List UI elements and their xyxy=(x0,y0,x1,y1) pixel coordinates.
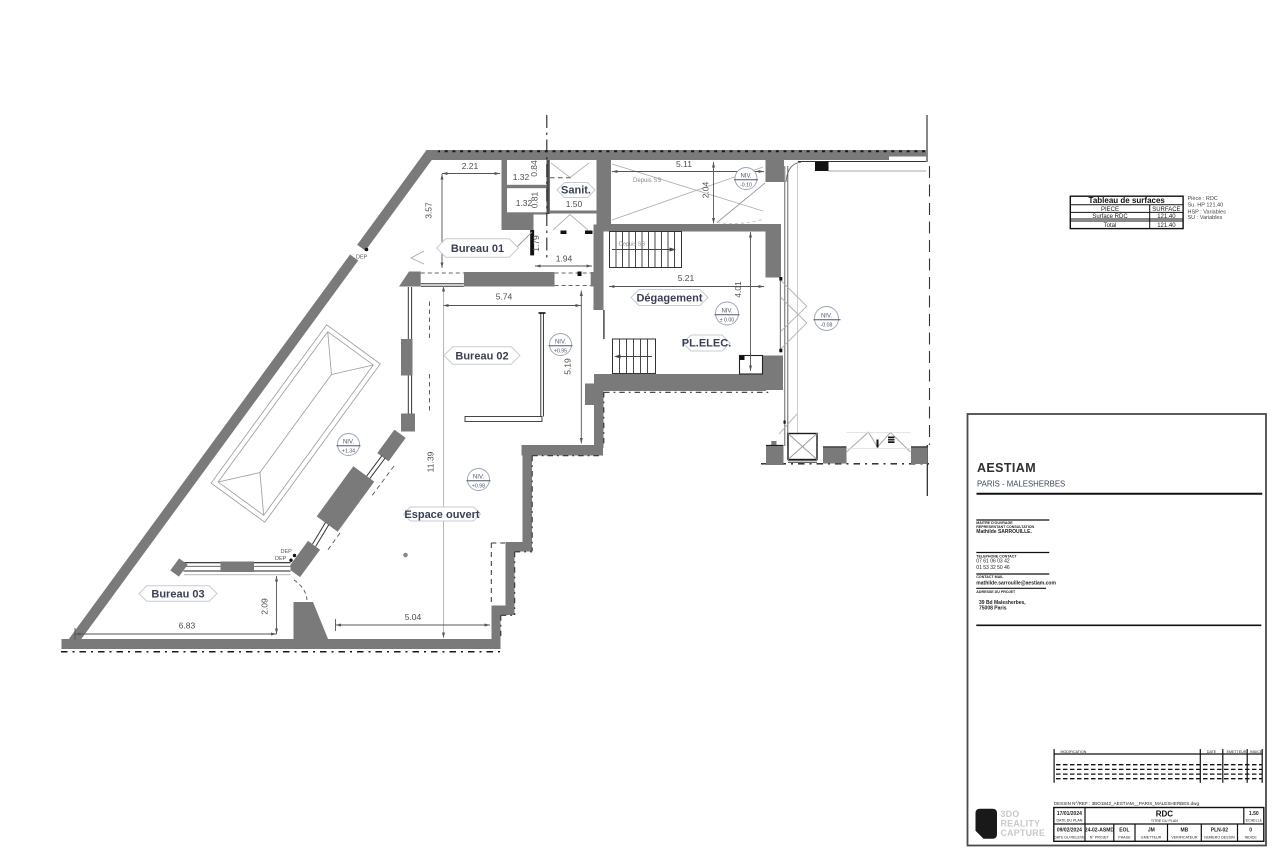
svg-text:Su. HP 121.40: Su. HP 121.40 xyxy=(1188,203,1224,209)
svg-text:3DO: 3DO xyxy=(1001,809,1020,819)
svg-text:Depuis SS: Depuis SS xyxy=(633,178,661,184)
svg-text:07 61 06 03 42: 07 61 06 03 42 xyxy=(976,559,1010,565)
svg-text:+0.95: +0.95 xyxy=(554,349,567,355)
svg-text:Bureau 01: Bureau 01 xyxy=(451,243,504,255)
svg-text:EOL: EOL xyxy=(1119,828,1129,834)
svg-text:AESTIAM: AESTIAM xyxy=(977,461,1036,475)
svg-text:+0.98: +0.98 xyxy=(472,484,485,490)
svg-text:1.50: 1.50 xyxy=(1249,811,1259,817)
svg-text:Surface RDC: Surface RDC xyxy=(1092,214,1128,220)
svg-text:5.74: 5.74 xyxy=(496,292,513,302)
svg-text:121.40: 121.40 xyxy=(1157,223,1176,229)
svg-text:0: 0 xyxy=(1249,828,1252,834)
svg-text:VERIFICATEUR: VERIFICATEUR xyxy=(1171,836,1197,840)
svg-text:Dégagement: Dégagement xyxy=(636,293,702,305)
svg-text:INDICE: INDICE xyxy=(1250,750,1263,754)
svg-text:NIV.: NIV. xyxy=(343,440,354,446)
svg-text:5.19: 5.19 xyxy=(563,358,573,375)
svg-text:2.21: 2.21 xyxy=(462,161,479,171)
svg-text:Sanit.: Sanit. xyxy=(561,185,591,197)
svg-text:DEP: DEP xyxy=(281,549,293,555)
svg-text:5.11: 5.11 xyxy=(676,159,692,169)
svg-text:INDICE: INDICE xyxy=(1245,836,1258,840)
svg-text:RDC: RDC xyxy=(1156,810,1174,819)
svg-text:121.40: 121.40 xyxy=(1157,214,1176,220)
svg-text:Mathilde SARROUILLE.: Mathilde SARROUILLE. xyxy=(976,529,1032,535)
svg-text:Bureau 03: Bureau 03 xyxy=(151,589,204,601)
svg-text:± 0.00: ± 0.00 xyxy=(720,318,734,324)
svg-text:1.94: 1.94 xyxy=(556,254,573,264)
svg-text:DATE DU RELEVE: DATE DU RELEVE xyxy=(1054,836,1085,840)
svg-text:ADRESSE DU PROJET: ADRESSE DU PROJET xyxy=(976,590,1016,594)
svg-text:1.79: 1.79 xyxy=(531,235,541,252)
svg-text:SURFACE: SURFACE xyxy=(1152,207,1180,213)
svg-text:NIV.: NIV. xyxy=(721,309,732,315)
svg-text:11.39: 11.39 xyxy=(426,451,436,472)
svg-text:24-02-ASMD: 24-02-ASMD xyxy=(1085,828,1115,834)
svg-text:Espace ouvert: Espace ouvert xyxy=(404,509,480,521)
svg-text:NIV.: NIV. xyxy=(740,174,751,180)
svg-text:JM: JM xyxy=(1148,828,1155,834)
svg-text:-0.08: -0.08 xyxy=(821,323,833,329)
svg-text:DEP: DEP xyxy=(275,556,287,562)
svg-text:1.50: 1.50 xyxy=(566,199,583,209)
svg-text:DESSIN N°/REF : 3BO1842_AE: DESSIN N°/REF : 3BO1842_AESTIAM__PARIS_M… xyxy=(1054,801,1200,806)
svg-text:2.04: 2.04 xyxy=(701,181,711,198)
svg-text:DEP: DEP xyxy=(356,255,368,261)
svg-text:PL.ELEC.: PL.ELEC. xyxy=(682,338,732,350)
svg-text:DATE: DATE xyxy=(1207,750,1217,754)
svg-text:PHASE: PHASE xyxy=(1118,836,1131,840)
svg-text:5.21: 5.21 xyxy=(678,273,695,283)
svg-text:mathilde.sarrouille@aestiam.co: mathilde.sarrouille@aestiam.com xyxy=(976,580,1056,586)
svg-text:Tableau de surfaces: Tableau de surfaces xyxy=(1089,196,1166,205)
svg-text:-0.10: -0.10 xyxy=(740,183,752,189)
svg-text:PLN-02: PLN-02 xyxy=(1211,828,1228,834)
svg-text:TITRE DU PLAN: TITRE DU PLAN xyxy=(1151,819,1178,823)
svg-text:PIECE: PIECE xyxy=(1101,207,1119,213)
svg-text:0.81: 0.81 xyxy=(530,191,540,208)
svg-text:75008 Paris: 75008 Paris xyxy=(979,605,1007,611)
svg-text:DATE DU PLAN: DATE DU PLAN xyxy=(1056,819,1082,823)
svg-text:4.01: 4.01 xyxy=(733,281,743,298)
svg-text:Depuis SS: Depuis SS xyxy=(619,242,645,248)
svg-text:1.32: 1.32 xyxy=(513,172,530,182)
svg-text:2.09: 2.09 xyxy=(260,598,270,615)
svg-text:MODIFICATION: MODIFICATION xyxy=(1061,750,1087,754)
svg-text:EMETTEUR: EMETTEUR xyxy=(1227,750,1247,754)
svg-text:Pièce : RDC: Pièce : RDC xyxy=(1188,196,1218,202)
svg-text:EMETTEUR: EMETTEUR xyxy=(1141,836,1161,840)
svg-text:Bureau 02: Bureau 02 xyxy=(455,351,508,363)
svg-text:09/02/2024: 09/02/2024 xyxy=(1057,828,1082,834)
svg-text:PARIS - MALESHERBES: PARIS - MALESHERBES xyxy=(977,480,1065,489)
svg-text:+1.34: +1.34 xyxy=(342,449,355,455)
svg-text:CAPTURE: CAPTURE xyxy=(1001,828,1046,838)
svg-text:SU : Variables: SU : Variables xyxy=(1188,215,1223,221)
svg-text:REALITY: REALITY xyxy=(1001,819,1041,829)
svg-text:N° PROJET: N° PROJET xyxy=(1090,836,1110,840)
svg-text:17/01/2024: 17/01/2024 xyxy=(1057,811,1082,817)
svg-text:5.04: 5.04 xyxy=(405,612,422,622)
svg-text:NUMERO DESSIN: NUMERO DESSIN xyxy=(1204,836,1235,840)
svg-text:ECHELLE: ECHELLE xyxy=(1246,819,1263,823)
svg-text:3.57: 3.57 xyxy=(424,202,434,219)
svg-text:6.83: 6.83 xyxy=(179,621,196,631)
svg-text:01 53 32 50 46: 01 53 32 50 46 xyxy=(976,565,1010,571)
svg-text:NIV.: NIV. xyxy=(473,475,484,481)
svg-text:MB: MB xyxy=(1181,828,1189,834)
svg-text:0.84: 0.84 xyxy=(529,160,539,177)
svg-text:NIV.: NIV. xyxy=(821,314,832,320)
svg-text:Total: Total xyxy=(1104,223,1117,229)
svg-text:CONTACT MAIL: CONTACT MAIL xyxy=(976,575,1004,579)
svg-text:NIV.: NIV. xyxy=(555,340,566,346)
